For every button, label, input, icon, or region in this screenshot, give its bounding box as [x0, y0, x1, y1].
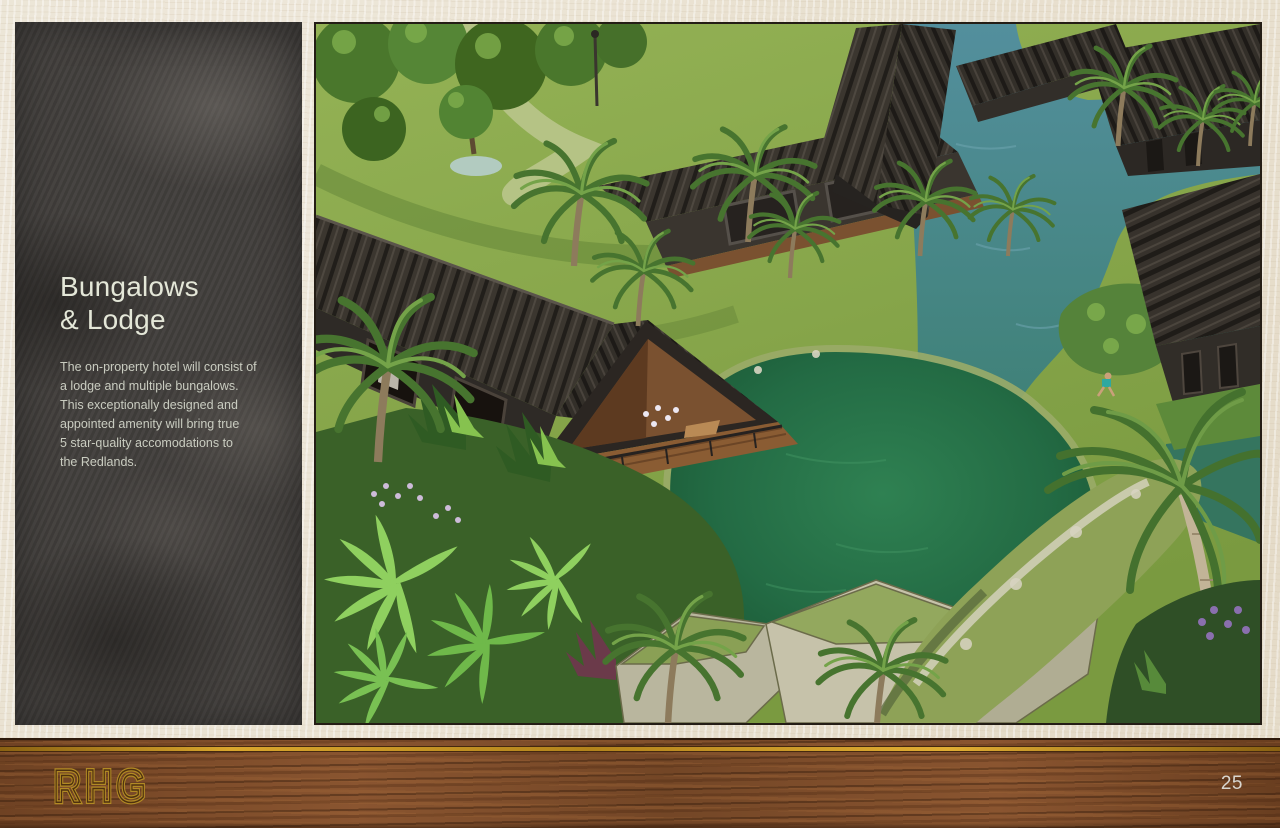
- page-number: 25: [1221, 773, 1243, 795]
- resort-rendering: [316, 24, 1260, 723]
- sidebar-content: Bungalows & Lodge The on-property hotel …: [60, 270, 275, 472]
- body-line: This exceptionally designed and: [60, 396, 275, 415]
- slide-page: { "sidebar": { "title_lines": ["Bungalow…: [0, 0, 1280, 828]
- body-line: The on-property hotel will consist of: [60, 358, 275, 377]
- body-line: appointed amenity will bring true: [60, 415, 275, 434]
- resort-rendering-image: [314, 22, 1262, 725]
- footer-wood-bar: RHG RHG 25: [0, 738, 1280, 828]
- sidebar-panel: Bungalows & Lodge The on-property hotel …: [15, 22, 302, 725]
- rhg-logo-text-inner: RHG: [54, 760, 150, 811]
- body-line: 5 star-quality accomodations to: [60, 434, 275, 453]
- rhg-logo: RHG RHG: [52, 758, 172, 812]
- page-title: Bungalows & Lodge: [60, 270, 275, 336]
- body-paragraph: The on-property hotel will consist of a …: [60, 358, 275, 472]
- body-line: a lodge and multiple bungalows.: [60, 377, 275, 396]
- page-title-line-1: Bungalows: [60, 270, 275, 303]
- body-line: the Redlands.: [60, 453, 275, 472]
- page-title-line-2: & Lodge: [60, 303, 275, 336]
